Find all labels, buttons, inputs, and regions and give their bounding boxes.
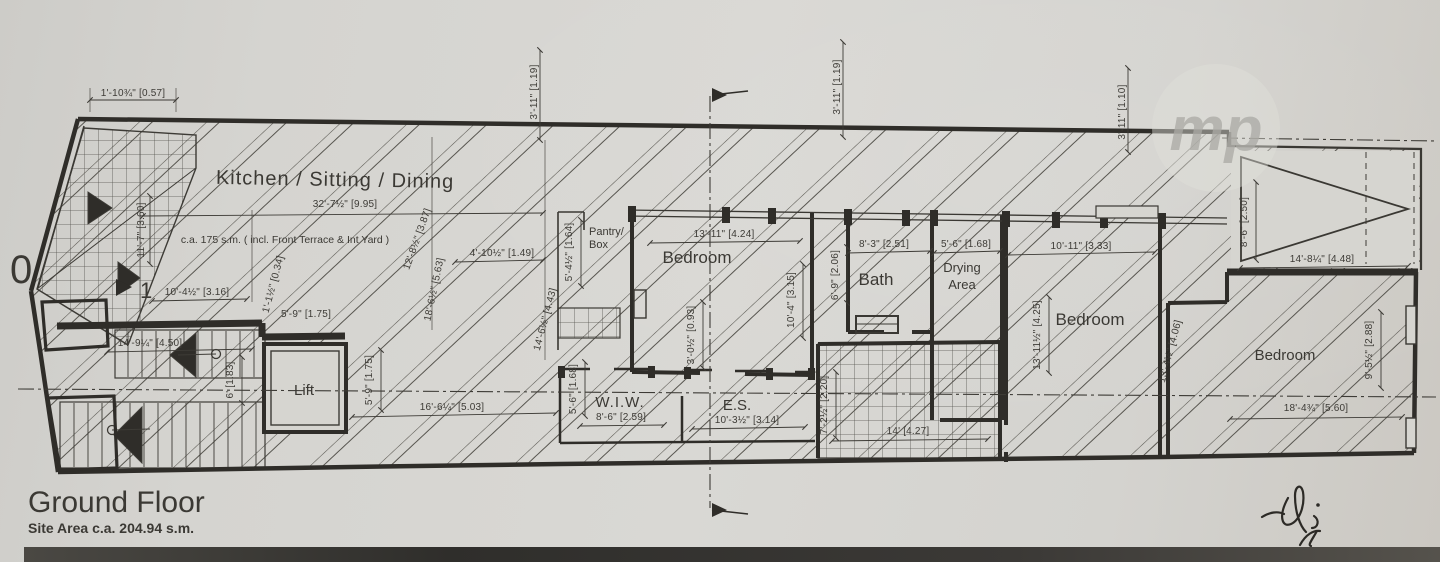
- room-label-wiw: W.I.W.: [595, 394, 644, 411]
- dimension-label: 10'-4½" [3.16]: [165, 287, 229, 298]
- room-label-kitchen: Kitchen / Sitting / Dining: [216, 167, 455, 193]
- area-note: c.a. 175 s.m. ( incl. Front Terrace & In…: [181, 234, 389, 246]
- edge-digit: 0: [10, 248, 32, 292]
- scanned-floor-plan-page: 1'-10¾" [0.57] 3'-11" [1.19] 3'-11" [1.1…: [0, 0, 1440, 562]
- dimension-label: 6' [1.83]: [225, 361, 236, 398]
- window: [1096, 206, 1158, 218]
- dimension-label: 8'-3" [2.51]: [859, 239, 909, 250]
- dimension-label: 14' [4.27]: [887, 426, 930, 437]
- page-subtitle: Site Area c.a. 204.94 s.m.: [28, 520, 194, 536]
- room-label-drying-area: Area: [948, 277, 976, 292]
- dimension-label: 14'-9¼" [4.50]: [118, 337, 182, 349]
- dimension-label: 3'-11" [1.19]: [529, 64, 540, 119]
- dimension-label: 3'-11" [1.10]: [1117, 84, 1128, 139]
- dimension-label: 11'-7" [3.60]: [136, 202, 147, 257]
- dimension-label: 5'-6" [1.68]: [568, 364, 579, 414]
- watermark-logo: mp: [1152, 64, 1280, 192]
- dimension-label: 10'-11" [3.33]: [1051, 241, 1112, 252]
- dimension-label: 1'-10¾" [0.57]: [101, 88, 165, 99]
- signature: [1262, 487, 1320, 546]
- room-label-bedroom3: Bedroom: [1255, 347, 1316, 364]
- dimension-label: 8'-6" [2.50]: [1239, 197, 1250, 247]
- dimension-label: 10'-4" [3.15]: [786, 272, 797, 328]
- dimension-label: 16'-6¼" [5.03]: [420, 401, 484, 413]
- room-label-pantry: Box: [589, 239, 608, 251]
- room-label-bedroom2: Bedroom: [1056, 310, 1125, 329]
- dimension-label: 13'-11½" [4.25]: [1032, 300, 1043, 369]
- page-title: Ground Floor: [28, 486, 205, 519]
- level-marker: 1: [140, 278, 152, 303]
- watermark-text: mp: [1170, 95, 1263, 164]
- room-label-es: E.S.: [723, 397, 751, 414]
- room-label-pantry: Pantry/: [589, 226, 625, 238]
- dimension-label: 5'-6" [1.68]: [941, 239, 991, 250]
- dimension-label: 14'-8¼" [4.48]: [1290, 253, 1354, 265]
- dimension-label: 9'-5½" [2.88]: [1364, 321, 1375, 380]
- room-label-bedroom1: Bedroom: [663, 248, 732, 267]
- dimension-label: 5'-9" [1.75]: [364, 355, 375, 405]
- pantry-shelf: [558, 308, 620, 338]
- room-label-lift: Lift: [294, 382, 315, 399]
- room-label-drying-area: Drying: [943, 260, 981, 275]
- dimension-label: 3'-0½" [0.93]: [686, 306, 697, 365]
- dimension-label: 10'-3½" [3.14]: [715, 415, 779, 426]
- dimension-label: 3'-11" [1.19]: [832, 59, 843, 114]
- dimension-label: 5'-9" [1.75]: [281, 309, 331, 320]
- dimension-label: 32'-7½" [9.95]: [313, 199, 377, 210]
- dimension-label: 5'-4½" [1.64]: [564, 223, 575, 282]
- window: [1406, 418, 1416, 448]
- dimension-label: 4'-10½" [1.49]: [470, 248, 534, 259]
- window: [1406, 306, 1416, 344]
- title-block: Ground Floor Site Area c.a. 204.94 s.m.: [28, 486, 205, 536]
- dimension-label: 6'-9" [2.06]: [830, 250, 841, 300]
- scan-edge-strip: [24, 547, 1440, 562]
- floor-plan-drawing: 1'-10¾" [0.57] 3'-11" [1.19] 3'-11" [1.1…: [0, 0, 1440, 562]
- room-label-bath: Bath: [859, 270, 894, 289]
- dimension-label: 8'-6" [2.59]: [596, 412, 646, 423]
- dimension-label: 7'-2½" [2.20]: [819, 376, 830, 435]
- dimension-label: 13'-11" [4.24]: [694, 229, 755, 240]
- dimension-label: 18'-4¾" [5.60]: [1284, 403, 1348, 414]
